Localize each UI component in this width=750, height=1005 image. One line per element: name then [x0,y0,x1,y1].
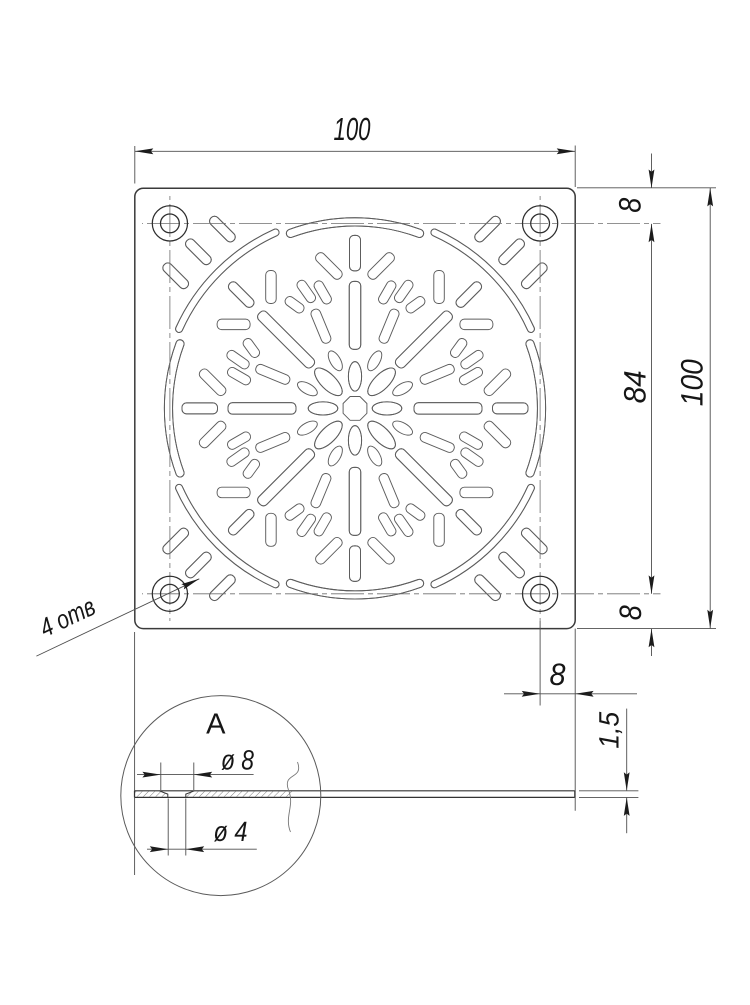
svg-text:A: A [206,709,226,741]
svg-text:8: 8 [613,197,648,213]
svg-text:84: 84 [618,370,653,403]
svg-text:1,5: 1,5 [594,711,625,748]
svg-text:ø 4: ø 4 [214,816,248,847]
svg-text:8: 8 [613,605,648,621]
svg-text:100: 100 [675,359,710,406]
svg-text:100: 100 [334,111,371,147]
svg-text:ø 8: ø 8 [221,745,254,776]
svg-text:8: 8 [550,657,567,692]
